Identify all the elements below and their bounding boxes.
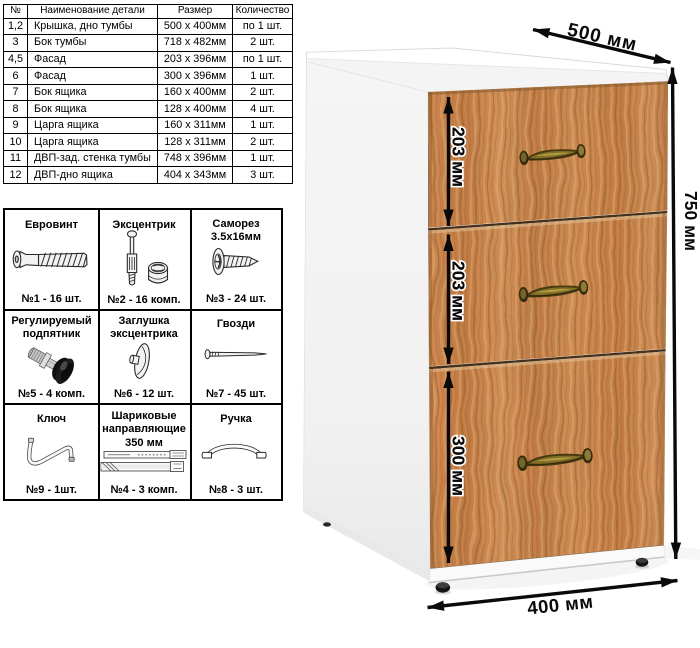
svg-text:203 мм: 203 мм (449, 127, 469, 187)
svg-text:300 мм: 300 мм (449, 436, 469, 496)
svg-text:203 мм: 203 мм (449, 261, 469, 321)
svg-text:500 мм: 500 мм (565, 20, 639, 56)
svg-text:750 мм: 750 мм (681, 191, 700, 251)
